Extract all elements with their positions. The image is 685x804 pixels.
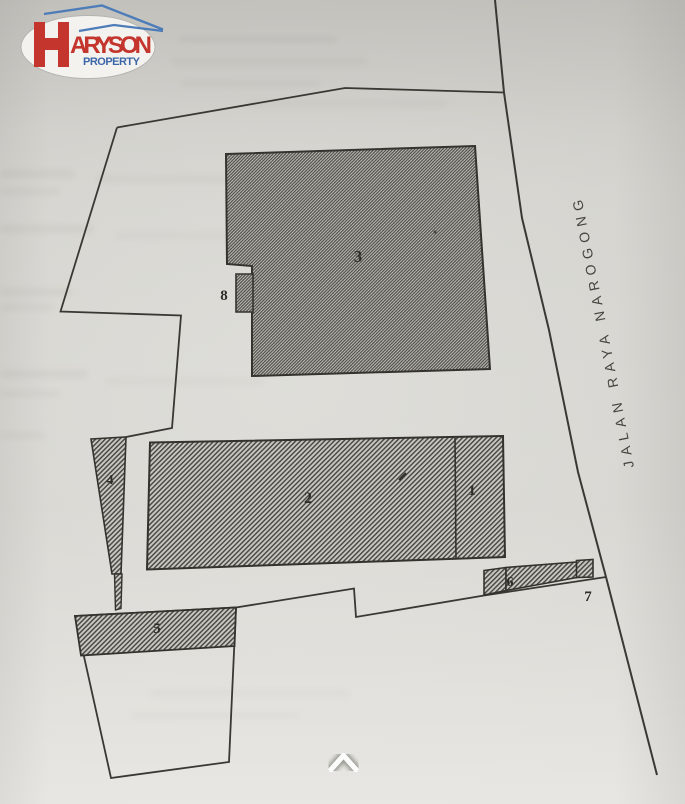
svg-text:5: 5 bbox=[153, 621, 161, 637]
svg-text:3: 3 bbox=[354, 247, 363, 266]
svg-text:6: 6 bbox=[507, 575, 514, 590]
svg-text:2: 2 bbox=[304, 490, 312, 507]
svg-text:ARYSON: ARYSON bbox=[70, 32, 152, 59]
svg-text:JALAN RAYA NAROGONG: JALAN RAYA NAROGONG bbox=[569, 195, 637, 469]
svg-text:PROPERTY: PROPERTY bbox=[83, 56, 141, 68]
svg-text:4: 4 bbox=[107, 473, 114, 488]
svg-text:7: 7 bbox=[584, 589, 592, 605]
svg-text:1: 1 bbox=[468, 483, 476, 499]
svg-text:8: 8 bbox=[220, 288, 228, 304]
